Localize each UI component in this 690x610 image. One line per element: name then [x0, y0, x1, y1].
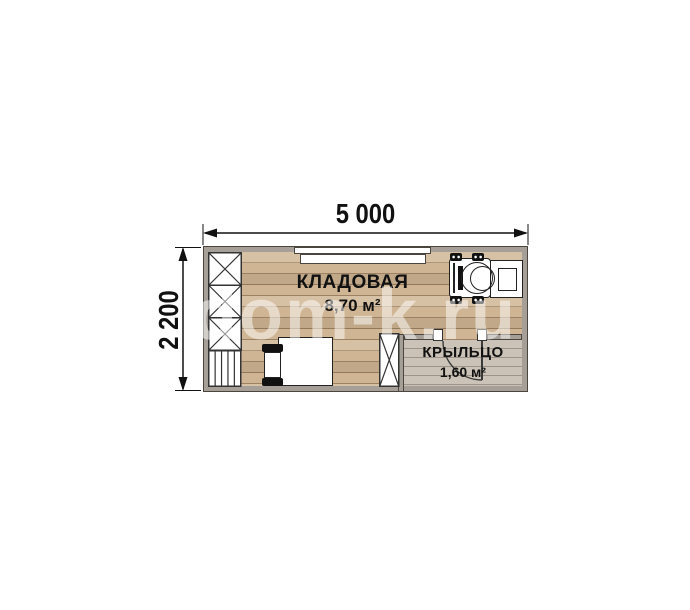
armchair-seat-inner-circle — [470, 266, 495, 291]
porch-front-wall-left-segment — [404, 334, 433, 340]
chair-armrest-bottom — [262, 378, 283, 386]
porch-area: 1,60 м² — [404, 364, 522, 380]
storage-room-label: КЛАДОВАЯ — [240, 272, 465, 294]
porch-label: КРЫЛЬЦО — [404, 344, 522, 361]
window-frame — [294, 247, 431, 254]
floor-plan-image: КЛАДОВАЯ 8,70 м² КРЫЛЬЦО 1,60 м² 5 000 2… — [0, 0, 690, 610]
door-jamb-post-left — [433, 329, 443, 341]
storage-room-area: 8,70 м² — [240, 296, 465, 316]
door-jamb-post-right — [477, 329, 487, 341]
chair-seat — [264, 352, 281, 378]
porch-partition-wall — [398, 334, 404, 392]
side-table-top — [498, 268, 517, 291]
table — [278, 337, 333, 386]
window-sill — [300, 254, 426, 264]
chair-armrest-top — [262, 344, 283, 352]
armchair-caster-icon — [472, 253, 484, 261]
width-dimension-label: 5 000 — [227, 198, 503, 230]
armchair-caster-icon — [450, 253, 462, 261]
porch-front-wall-right-segment — [487, 334, 522, 340]
armchair-caster-icon — [472, 296, 484, 304]
height-dimension-label: 2 200 — [155, 258, 183, 382]
